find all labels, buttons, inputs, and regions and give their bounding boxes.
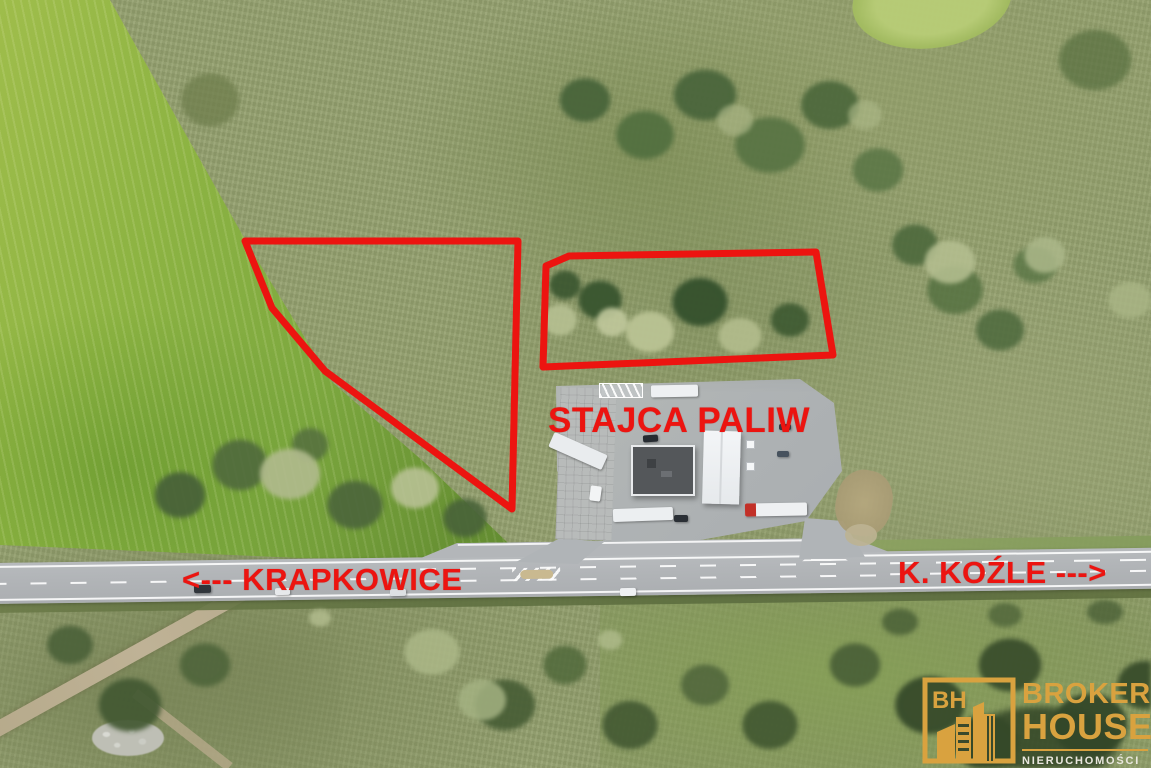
parked-truck <box>613 507 673 522</box>
tree-canopy-pale <box>0 0 1151 768</box>
direction-label-kozle: K. KOŹLE ---> <box>898 555 1107 591</box>
parked-car <box>674 515 688 522</box>
pump-island <box>746 440 755 449</box>
roof-vent <box>647 459 656 468</box>
parked-van <box>589 485 602 501</box>
bh-emblem: BH <box>921 676 1017 768</box>
broker-house-logo: BH BROKER HOUSE NIERUCHOMOŚCI <box>921 676 1151 768</box>
bh-monogram: BH <box>932 687 967 714</box>
red-truck-cab <box>745 503 756 516</box>
canopy-seam <box>719 431 723 504</box>
direction-label-krapkowice: <--- KRAPKOWICE <box>182 562 462 598</box>
logo-divider <box>1022 749 1148 751</box>
logo-line-broker: BROKER <box>1022 680 1150 709</box>
aerial-photo: STAJCA PALIW <--- KRAPKOWICE K. KOŹLE --… <box>0 0 1151 768</box>
logo-tagline: NIERUCHOMOŚCI <box>1022 755 1150 767</box>
roof-skylight <box>661 471 672 477</box>
parked-car <box>777 451 789 457</box>
van-on-road <box>620 588 636 596</box>
logo-line-house: HOUSE <box>1022 710 1150 744</box>
parked-truck <box>651 385 698 398</box>
station-label: STAJCA PALIW <box>548 401 810 441</box>
sandy-patch-small <box>845 524 877 546</box>
pump-island <box>746 462 755 471</box>
fuel-canopy <box>702 431 741 505</box>
truck-red-cab <box>745 502 807 516</box>
station-building-roof <box>631 445 695 496</box>
logo-wordmark: BROKER HOUSE NIERUCHOMOŚCI <box>1022 680 1150 767</box>
white-trellis-shelter <box>599 383 643 398</box>
